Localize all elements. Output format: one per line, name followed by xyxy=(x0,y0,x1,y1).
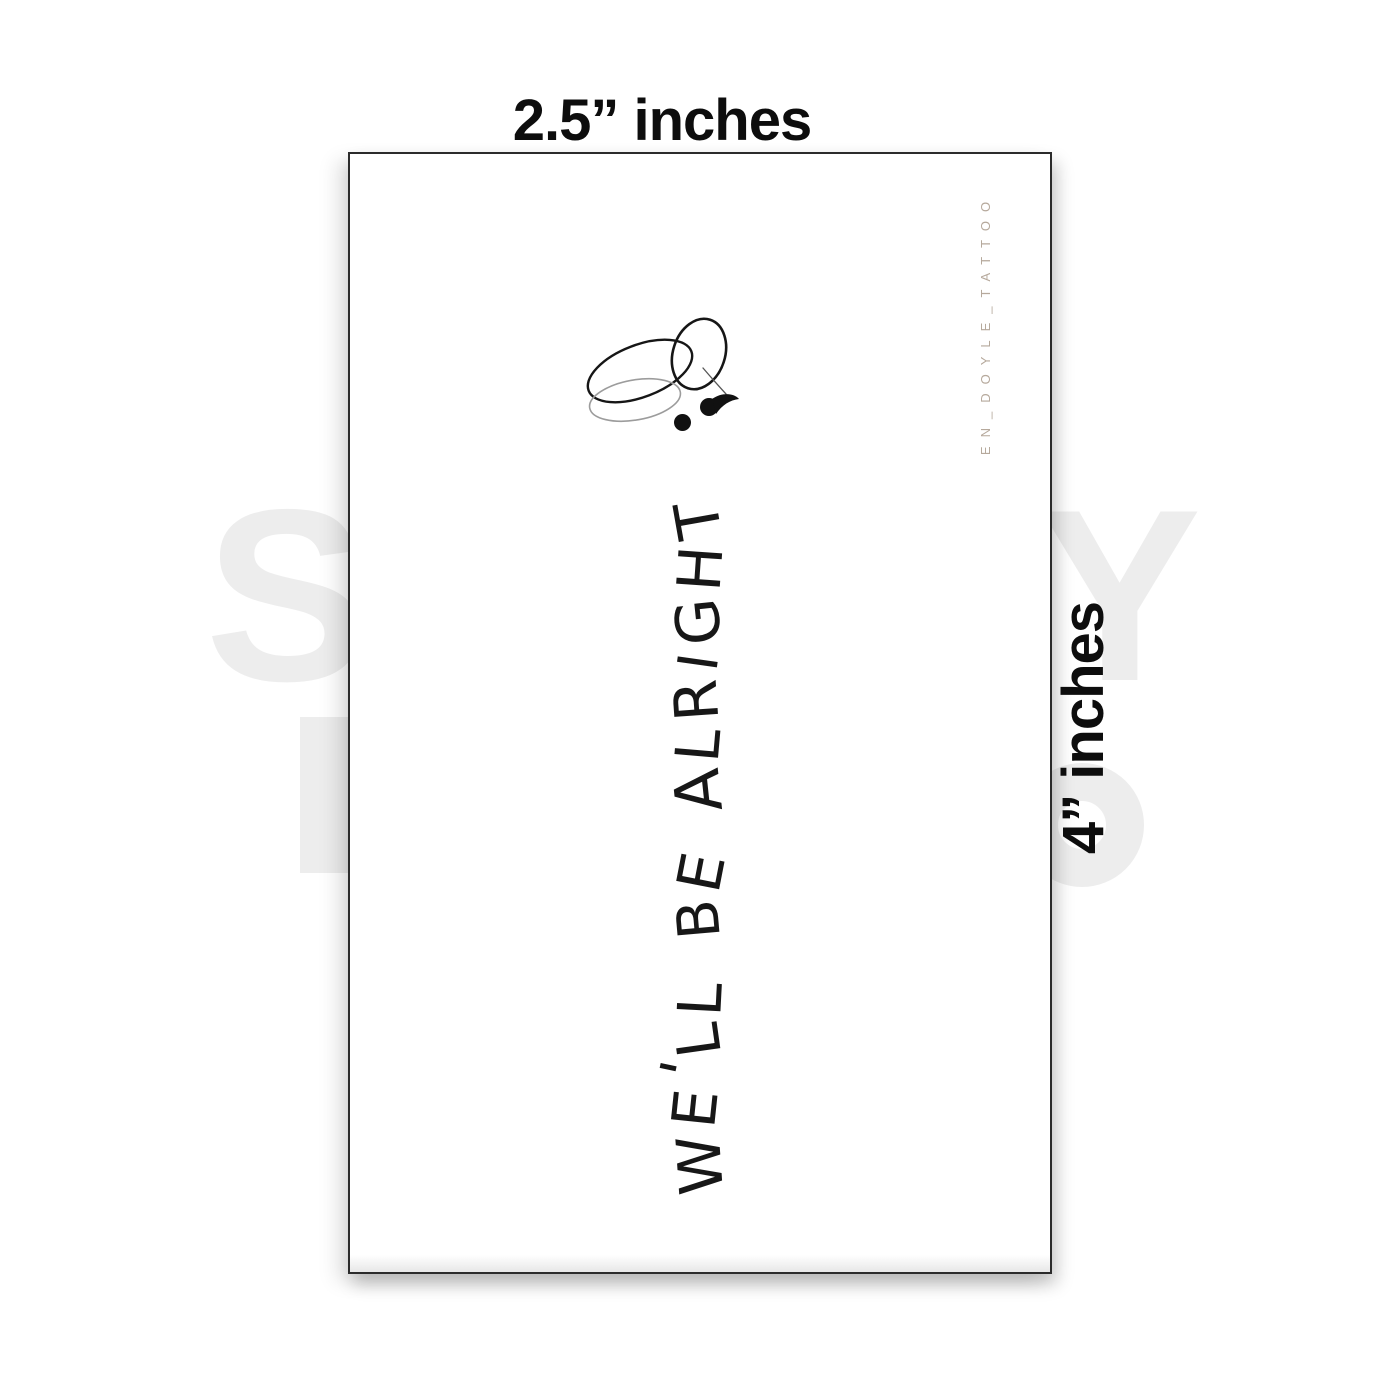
dimension-label-top: 2.5” inches xyxy=(362,92,962,150)
artist-credit-text: EN_DOYLE_TATTOO xyxy=(977,189,995,459)
tattoo-phrase-text: WE'LL BE ALRIGHT xyxy=(659,458,739,1238)
watermark-letter-s: S xyxy=(205,473,368,718)
semicolon xyxy=(674,394,739,431)
card-bottom-edge-shading xyxy=(350,1255,1050,1272)
product-image: S Y 2.5” inches 4” inches EN_DOYLE_TATTO… xyxy=(0,0,1400,1400)
dimension-label-side: 4” inches xyxy=(1049,598,1119,858)
watermark-fragment-bar xyxy=(300,717,348,873)
butterfly-semicolon-icon xyxy=(562,302,762,442)
tattoo-card: EN_DOYLE_TATTOO WE'LL BE ALRIGHT xyxy=(348,152,1052,1274)
